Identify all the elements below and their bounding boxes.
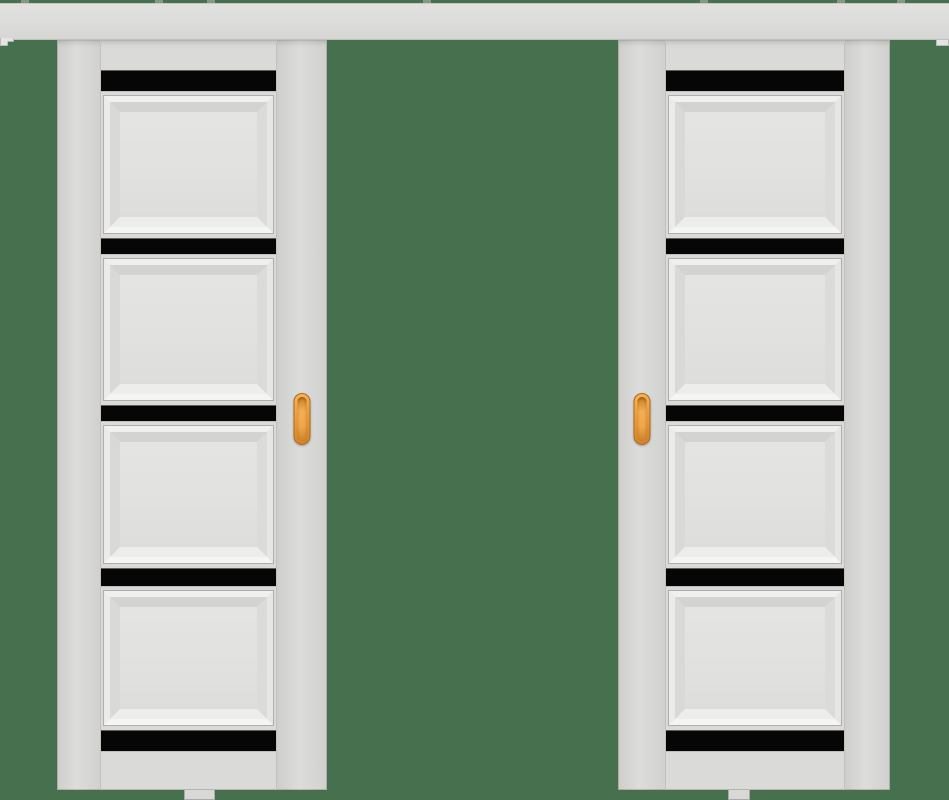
right-door bbox=[618, 40, 890, 790]
track-bracket bbox=[207, 0, 215, 3]
left-door-panel-2-panel-field bbox=[110, 265, 267, 394]
right-door-panel-3-raised-panel bbox=[669, 426, 841, 563]
right-door-center-section bbox=[665, 40, 845, 790]
left-door-panel-4 bbox=[101, 587, 276, 730]
left-door-glass-strip-3 bbox=[101, 405, 276, 422]
right-door-glass-strip-1 bbox=[666, 70, 844, 92]
track-bracket bbox=[423, 0, 431, 3]
left-door-panel-1 bbox=[101, 92, 276, 238]
right-door-glass-strip-4 bbox=[666, 568, 844, 587]
right-door-flush-pull-handle bbox=[633, 393, 650, 445]
right-door-panel-4-panel-field bbox=[675, 597, 835, 719]
right-door-panel-3-panel-field bbox=[675, 432, 835, 557]
right-door-door-top-rail bbox=[666, 40, 844, 70]
left-door-panel-3-raised-panel bbox=[104, 426, 273, 563]
left-door-panel-4-panel-field bbox=[110, 597, 267, 719]
left-door-handle-recess bbox=[298, 397, 307, 441]
right-door-panel-1-raised-panel bbox=[669, 96, 841, 233]
track-end-cap-left bbox=[0, 38, 14, 46]
right-door-handle-recess bbox=[637, 397, 646, 441]
track-bracket bbox=[700, 0, 708, 3]
left-door-glass-strip-4 bbox=[101, 568, 276, 587]
right-door-outer-stile bbox=[845, 40, 890, 790]
right-door-glass-strip-3 bbox=[666, 405, 844, 422]
scene-background bbox=[0, 0, 949, 800]
left-door-center-section bbox=[100, 40, 277, 790]
left-door bbox=[57, 40, 327, 790]
left-door-floor-guide bbox=[184, 790, 215, 800]
right-door-panel-4-raised-panel bbox=[669, 591, 841, 725]
right-door-handle-stile bbox=[618, 40, 665, 790]
left-door-handle-stile bbox=[277, 40, 327, 790]
right-door-panel-2 bbox=[666, 255, 844, 405]
left-door-panel-2 bbox=[101, 255, 276, 405]
right-door-panel-1 bbox=[666, 92, 844, 238]
left-door-flush-pull-handle bbox=[294, 393, 311, 445]
left-door-outer-stile bbox=[57, 40, 100, 790]
left-door-door-bottom-rail bbox=[101, 752, 276, 790]
left-door-door-top-rail bbox=[101, 40, 276, 70]
right-door-glass-strip-2 bbox=[666, 238, 844, 255]
left-door-panel-3-panel-field bbox=[110, 432, 267, 557]
right-door-glass-strip-5 bbox=[666, 730, 844, 752]
right-door-panel-2-raised-panel bbox=[669, 259, 841, 400]
left-door-panel-2-raised-panel bbox=[104, 259, 273, 400]
left-door-panel-3 bbox=[101, 422, 276, 568]
right-door-floor-guide bbox=[728, 790, 750, 800]
right-door-panel-2-panel-field bbox=[675, 265, 835, 394]
left-door-panel-1-raised-panel bbox=[104, 96, 273, 233]
top-track-rail bbox=[0, 3, 949, 40]
track-bracket bbox=[837, 0, 845, 3]
right-door-panel-3 bbox=[666, 422, 844, 568]
right-door-panel-4 bbox=[666, 587, 844, 730]
left-door-panel-1-panel-field bbox=[110, 102, 267, 227]
left-door-glass-strip-5 bbox=[101, 730, 276, 752]
track-end-cap-right bbox=[936, 40, 949, 46]
track-bracket bbox=[897, 0, 905, 3]
track-bracket bbox=[155, 0, 163, 3]
right-door-door-bottom-rail bbox=[666, 752, 844, 790]
left-door-glass-strip-2 bbox=[101, 238, 276, 255]
track-bracket bbox=[21, 0, 29, 3]
left-door-panel-4-raised-panel bbox=[104, 591, 273, 725]
right-door-panel-1-panel-field bbox=[675, 102, 835, 227]
left-door-glass-strip-1 bbox=[101, 70, 276, 92]
